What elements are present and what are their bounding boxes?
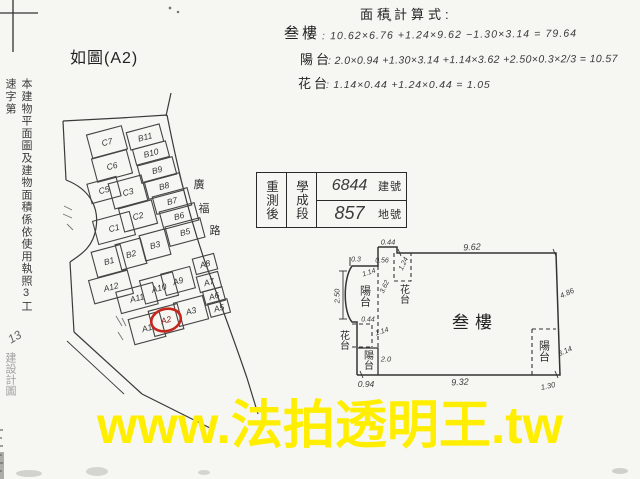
- site-map-boundary: [63, 93, 258, 428]
- dim-top-step: 0.44: [381, 238, 396, 247]
- survey-row-header: 重測後: [257, 173, 287, 227]
- margin-note-faint: 建設計圖: [2, 352, 18, 402]
- scan-smudge: [16, 470, 42, 477]
- flowerbed-label-lower: 花台: [338, 330, 349, 350]
- balcony-label-lower: 陽台: [362, 350, 373, 370]
- dim-step-width: 0.56: [375, 258, 389, 265]
- formula-expr-balcony: : 2.0×0.94 +1.30×3.14 +1.14×3.62 +2.50×0…: [328, 53, 618, 67]
- road-name-char: 福: [199, 200, 210, 216]
- dim-balcony-low-h: 2.0: [381, 355, 391, 364]
- dim-left-step: 0.3: [351, 257, 361, 264]
- floorplan-room-label: 叁樓: [452, 308, 498, 333]
- formula-label-floor: 叁樓: [284, 22, 320, 43]
- scanned-document-page: 本建物平面圖及建物面積係依使用執照3工速字第 13 建設計圖 如圖(A2) 面積…: [0, 0, 640, 479]
- road-name-char: 路: [210, 222, 221, 238]
- land-number: 857: [321, 203, 378, 224]
- building-number-label: 建號: [378, 178, 402, 194]
- dim-left: 2.50: [333, 289, 342, 304]
- watermark-text: www.法拍透明王.tw: [22, 394, 638, 458]
- scan-edge-smudge: [0, 452, 4, 479]
- scan-smudge: [198, 470, 210, 475]
- margin-note-printed: 本建物平面圖及建物面積係依使用執照3工速字第: [2, 78, 34, 323]
- corner-mark: [0, 0, 38, 52]
- table-row: 6844 建號: [317, 173, 406, 201]
- scan-smudge: [86, 467, 108, 476]
- figure-caption: 如圖(A2): [70, 44, 138, 68]
- dim-top: 9.62: [463, 242, 481, 253]
- balcony-label-right: 陽台: [538, 340, 549, 362]
- table-row: 857 地號: [317, 201, 406, 228]
- land-number-label: 地號: [378, 206, 402, 222]
- road-edge-line: [167, 115, 258, 414]
- dim-mid-step: 0.44: [361, 317, 375, 324]
- survey-table: 重測後 學成段 6844 建號 857 地號: [256, 172, 407, 228]
- formula-expr-flowerbed: : 1.14×0.44 +1.24×0.44 = 1.05: [326, 79, 491, 91]
- balcony-label-upper: 陽台: [359, 285, 370, 307]
- road-name-char: 廣: [194, 176, 205, 192]
- survey-section-name: 學成段: [287, 173, 317, 227]
- dim-bottom: 9.32: [451, 377, 469, 388]
- building-number: 6844: [321, 177, 378, 195]
- dim-bottom-left: 0.94: [358, 379, 375, 389]
- scan-smudge: [612, 468, 628, 474]
- flowerbed-label-top: 花台: [398, 284, 409, 304]
- formulas-title: 面積計算式:: [360, 4, 453, 23]
